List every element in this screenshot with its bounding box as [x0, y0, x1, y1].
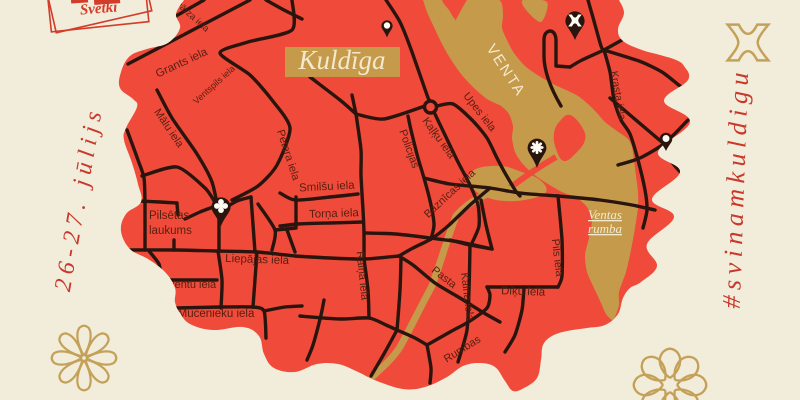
- svg-text:Ventas: Ventas: [588, 207, 622, 222]
- svg-text:Torņa iela: Torņa iela: [309, 207, 360, 221]
- svg-text:Liepājas iela: Liepājas iela: [225, 253, 290, 267]
- svg-text:Pilsētas: Pilsētas: [149, 210, 190, 222]
- svg-text:laukums: laukums: [149, 225, 192, 237]
- svg-text:Diķu iela: Diķu iela: [501, 285, 546, 299]
- svg-text:Mucenieku iela: Mucenieku iela: [178, 308, 255, 320]
- svg-text:rumba: rumba: [588, 221, 622, 236]
- svg-text:Kuldīga: Kuldīga: [297, 45, 385, 75]
